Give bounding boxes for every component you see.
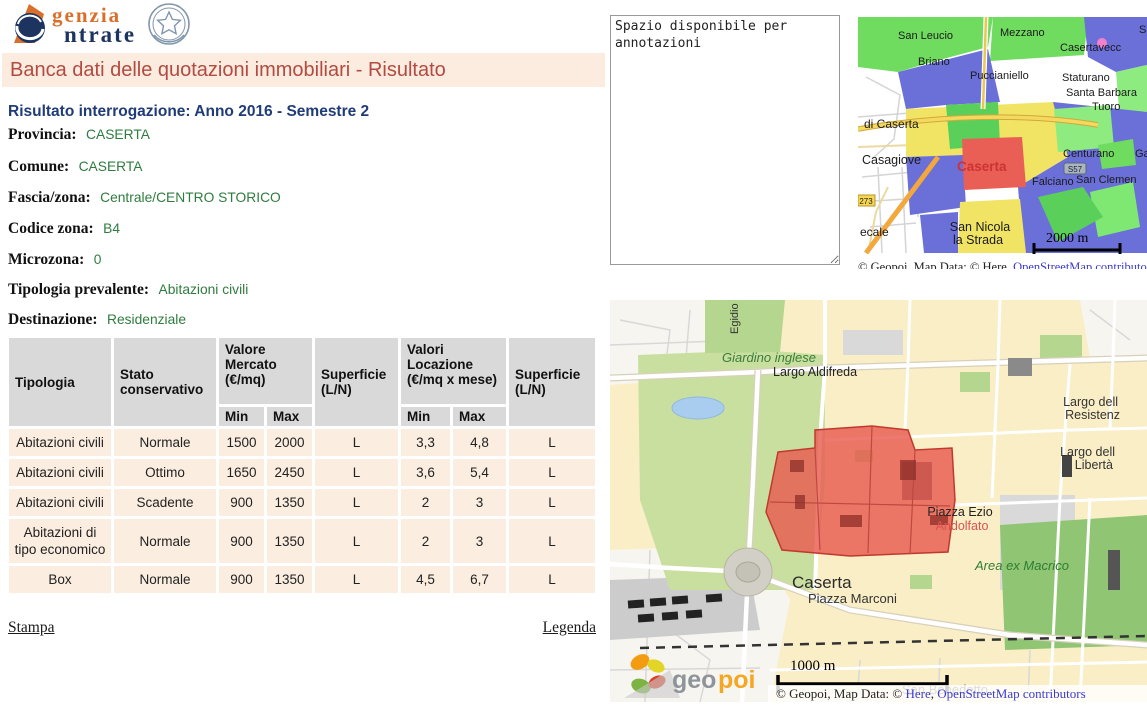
label-san-nicola-2: la Strada xyxy=(953,233,1003,247)
cell-stato: Normale xyxy=(114,429,216,456)
field-label: Fascia/zona: xyxy=(8,189,91,206)
label-largo-resistenza-1: Largo dell xyxy=(1063,395,1118,409)
osm-link[interactable]: OpenStreetMap contributors xyxy=(1013,260,1147,269)
cell-vl-min: 3,3 xyxy=(401,429,450,456)
label-briano: Briano xyxy=(918,56,950,68)
cell-vl-min: 4,5 xyxy=(401,566,450,593)
cell-tipologia: Box xyxy=(9,566,111,593)
italy-emblem-icon xyxy=(146,1,192,47)
label-tuoro: Tuoro xyxy=(1092,101,1120,113)
cell-superficie-1: L xyxy=(315,429,398,456)
field-label: Tipologia prevalente: xyxy=(8,281,149,298)
field-value: CASERTA xyxy=(86,127,150,142)
label-falciano: Falciano xyxy=(1032,176,1074,188)
label-largo-aldifreda: Largo Aldifreda xyxy=(773,365,857,379)
label-san-nicola-1: San Nicola xyxy=(950,220,1010,234)
quotations-table: Tipologia Stato conservativo Valore Merc… xyxy=(6,335,598,596)
cell-vm-max: 1350 xyxy=(267,566,312,593)
cell-vl-max: 3 xyxy=(453,519,506,563)
label-piazza-marconi: Piazza Marconi xyxy=(808,591,897,606)
cell-vl-max: 4,8 xyxy=(453,429,506,456)
label-ga: Ga xyxy=(1135,148,1147,160)
legenda-link[interactable]: Legenda xyxy=(543,619,596,637)
cell-vm-min: 900 xyxy=(219,519,264,563)
zone-detail-map-image: Egidio Giardino inglese Largo Aldifreda … xyxy=(610,300,1147,702)
field-provincia: Provincia: CASERTA xyxy=(8,126,150,144)
field-codice-zona: Codice zona: B4 xyxy=(8,220,120,238)
cell-stato: Normale xyxy=(114,566,216,593)
field-destinazione: Destinazione: Residenziale xyxy=(8,311,186,329)
cell-superficie-2: L xyxy=(509,566,595,593)
zone-detail-map: Egidio Giardino inglese Largo Aldifreda … xyxy=(610,300,1147,702)
cell-vl-max: 3 xyxy=(453,489,506,516)
col-header-superficie-1: Superficie (L/N) xyxy=(315,338,398,426)
field-tipologia-prevalente: Tipologia prevalente: Abitazioni civili xyxy=(8,281,248,299)
label-egidio: Egidio xyxy=(729,303,741,334)
label-di-caserta: di Caserta xyxy=(864,117,919,131)
cell-tipologia: Abitazioni civili xyxy=(9,489,111,516)
col-header-valore-mercato: Valore Mercato (€/mq) xyxy=(219,338,312,404)
table-row: Abitazioni civili Ottimo 1650 2450 L 3,6… xyxy=(9,459,595,486)
label-largo-liberta-1: Largo dell xyxy=(1060,445,1115,459)
col-header-superficie-2: Superficie (L/N) xyxy=(509,338,595,426)
cell-stato: Ottimo xyxy=(114,459,216,486)
field-value: Residenziale xyxy=(107,312,186,327)
col-header-valori-locazione: Valori Locazione (€/mq x mese) xyxy=(401,338,506,404)
label-s: S xyxy=(1139,24,1146,36)
cell-vl-max: 5,4 xyxy=(453,459,506,486)
cell-vl-min: 2 xyxy=(401,519,450,563)
field-value: CASERTA xyxy=(79,159,143,174)
label-ecale: ecale xyxy=(860,225,889,239)
cell-tipologia: Abitazioni civili xyxy=(9,459,111,486)
route-badge-s57: S57 xyxy=(1068,165,1083,174)
cell-stato: Normale xyxy=(114,519,216,563)
cell-stato: Scadente xyxy=(114,489,216,516)
label-san-clemente: San Clemen xyxy=(1076,174,1137,186)
cell-superficie-1: L xyxy=(315,566,398,593)
scale-label: 1000 m xyxy=(790,658,836,674)
cell-tipologia: Abitazioni civili xyxy=(9,429,111,456)
label-piazza-ezio: Piazza Ezio xyxy=(927,505,992,519)
zone-overview-map: S57 273 San Leucio Mezzano S Casertavecc… xyxy=(858,17,1147,269)
table-row: Abitazioni di tipo economico Normale 900… xyxy=(9,519,595,563)
cell-vm-max: 2000 xyxy=(267,429,312,456)
cell-vm-max: 2450 xyxy=(267,459,312,486)
field-value: 0 xyxy=(94,252,102,267)
cell-vl-min: 3,6 xyxy=(401,459,450,486)
footer-links: Stampa Legenda xyxy=(8,619,596,637)
table-row: Abitazioni civili Normale 1500 2000 L 3,… xyxy=(9,429,595,456)
cell-tipologia: Abitazioni di tipo economico xyxy=(9,519,111,563)
cell-superficie-1: L xyxy=(315,519,398,563)
page: genzia ntrate Banca dati delle quotazion… xyxy=(0,0,1147,716)
field-label: Destinazione: xyxy=(8,311,98,328)
cell-superficie-2: L xyxy=(509,459,595,486)
cell-superficie-1: L xyxy=(315,489,398,516)
table-row: Box Normale 900 1350 L 4,5 6,7 L xyxy=(9,566,595,593)
cell-vm-min: 1650 xyxy=(219,459,264,486)
annotations-textarea[interactable]: Spazio disponibile per annotazioni xyxy=(610,15,840,265)
cell-vm-max: 1350 xyxy=(267,519,312,563)
col-header-max-2: Max xyxy=(453,407,506,426)
cell-superficie-1: L xyxy=(315,459,398,486)
label-staturano: Staturano xyxy=(1062,72,1110,84)
field-value: B4 xyxy=(103,221,120,236)
field-microzona: Microzona: 0 xyxy=(8,251,101,269)
cell-vm-min: 1500 xyxy=(219,429,264,456)
col-header-stato: Stato conservativo xyxy=(114,338,216,426)
label-centurano: Centurano xyxy=(1063,148,1114,160)
field-label: Provincia: xyxy=(8,126,77,143)
stampa-link[interactable]: Stampa xyxy=(8,619,55,637)
label-largo-resistenza-2: Resistenz xyxy=(1065,408,1120,422)
cell-superficie-2: L xyxy=(509,429,595,456)
field-label: Codice zona: xyxy=(8,220,94,237)
col-header-max-1: Max xyxy=(267,407,312,426)
label-casagiove: Casagiove xyxy=(862,153,921,167)
field-label: Microzona: xyxy=(8,251,84,268)
cell-vm-max: 1350 xyxy=(267,489,312,516)
label-mezzano: Mezzano xyxy=(1000,27,1045,39)
label-area-ex-macrico: Area ex Macrico xyxy=(974,558,1069,573)
label-puccianiello: Puccianiello xyxy=(970,70,1029,82)
label-casertavecchia: Casertavecc xyxy=(1060,42,1122,54)
field-value: Centrale/CENTRO STORICO xyxy=(100,190,281,205)
route-badge-273: 273 xyxy=(859,197,873,206)
col-header-min-2: Min xyxy=(401,407,450,426)
cell-vm-min: 900 xyxy=(219,489,264,516)
geopoi-text-poi: poi xyxy=(718,666,756,694)
geopoi-text-geo: geo xyxy=(672,666,716,694)
cell-superficie-2: L xyxy=(509,519,595,563)
result-heading: Risultato interrogazione: Anno 2016 - Se… xyxy=(8,103,369,121)
page-title: Banca dati delle quotazioni immobiliari … xyxy=(2,53,605,87)
osm-link[interactable]: OpenStreetMap contributors xyxy=(937,686,1085,701)
cell-vl-max: 6,7 xyxy=(453,566,506,593)
agenzia-entrate-logo: genzia ntrate xyxy=(8,1,198,49)
col-header-min-1: Min xyxy=(219,407,264,426)
label-caserta: Caserta xyxy=(957,159,1007,174)
map-attribution: © Geopoi, Map Data: © Here, OpenStreetMa… xyxy=(858,259,1147,269)
field-comune: Comune: CASERTA xyxy=(8,158,143,176)
label-andolfato: Andolfato xyxy=(936,519,989,533)
label-giardino-inglese: Giardino inglese xyxy=(722,350,816,365)
attribution-text: © Geopoi, Map Data: © Here, xyxy=(858,260,1013,269)
agenzia-entrate-mark-icon xyxy=(8,1,54,47)
cell-superficie-2: L xyxy=(509,489,595,516)
field-fascia-zona: Fascia/zona: Centrale/CENTRO STORICO xyxy=(8,189,281,207)
logo-text-entrate: ntrate xyxy=(64,22,136,48)
label-san-leucio: San Leucio xyxy=(898,30,953,42)
label-largo-liberta-2: Libertà xyxy=(1075,458,1113,472)
scale-label: 2000 m xyxy=(1046,231,1089,246)
label-santa-barbara: Santa Barbara xyxy=(1066,87,1138,99)
attribution-text: © Geopoi, Map Data: © xyxy=(776,686,906,701)
field-label: Comune: xyxy=(8,158,69,175)
cell-vm-min: 900 xyxy=(219,566,264,593)
map-attribution: © Geopoi, Map Data: © Here, OpenStreetMa… xyxy=(768,685,1147,702)
cell-vl-min: 2 xyxy=(401,489,450,516)
here-link[interactable]: Here xyxy=(906,686,931,701)
field-value: Abitazioni civili xyxy=(159,282,249,297)
col-header-tipologia: Tipologia xyxy=(9,338,111,426)
label-caserta: Caserta xyxy=(792,573,852,592)
zone-overview-map-image: S57 273 San Leucio Mezzano S Casertavecc… xyxy=(858,17,1147,254)
table-row: Abitazioni civili Scadente 900 1350 L 2 … xyxy=(9,489,595,516)
